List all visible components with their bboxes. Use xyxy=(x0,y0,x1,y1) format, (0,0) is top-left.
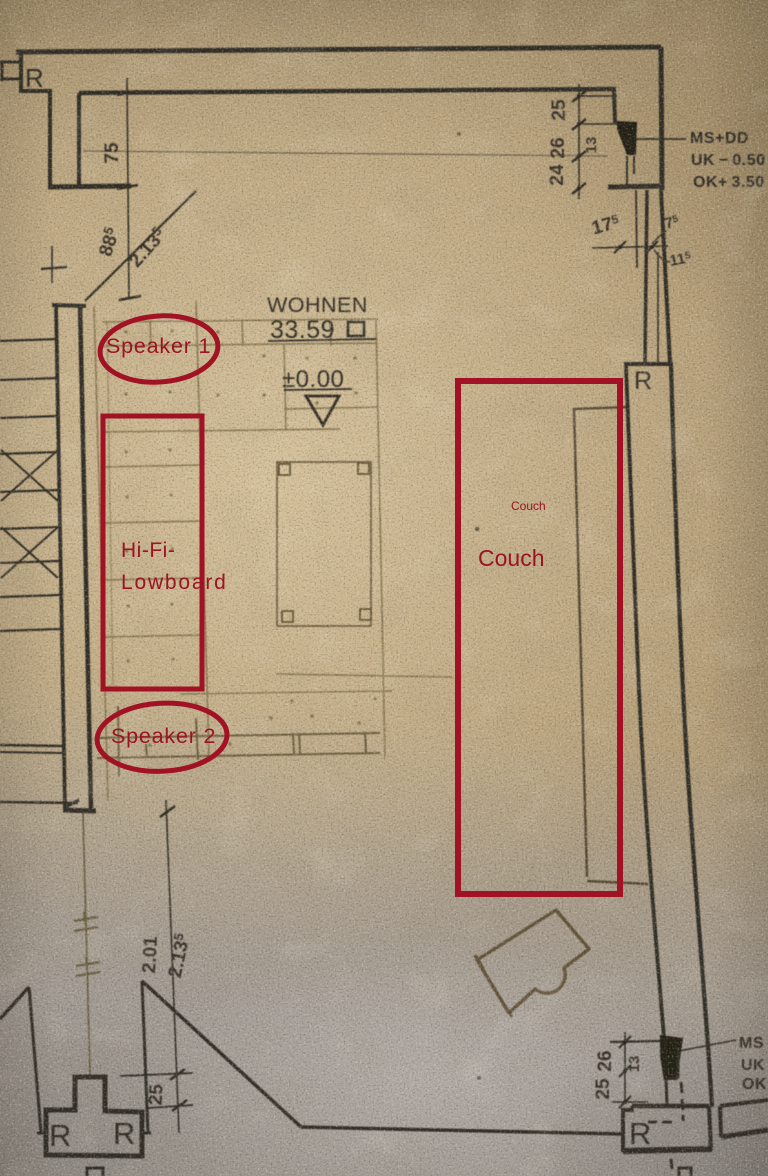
svg-text:Couch: Couch xyxy=(511,499,546,513)
svg-text:Speaker 2: Speaker 2 xyxy=(111,724,216,748)
svg-text:Couch: Couch xyxy=(478,545,544,571)
svg-text:Hi-Fi-: Hi-Fi- xyxy=(121,539,175,562)
svg-text:Speaker 1: Speaker 1 xyxy=(106,334,211,358)
svg-text:Lowboard: Lowboard xyxy=(121,571,228,594)
